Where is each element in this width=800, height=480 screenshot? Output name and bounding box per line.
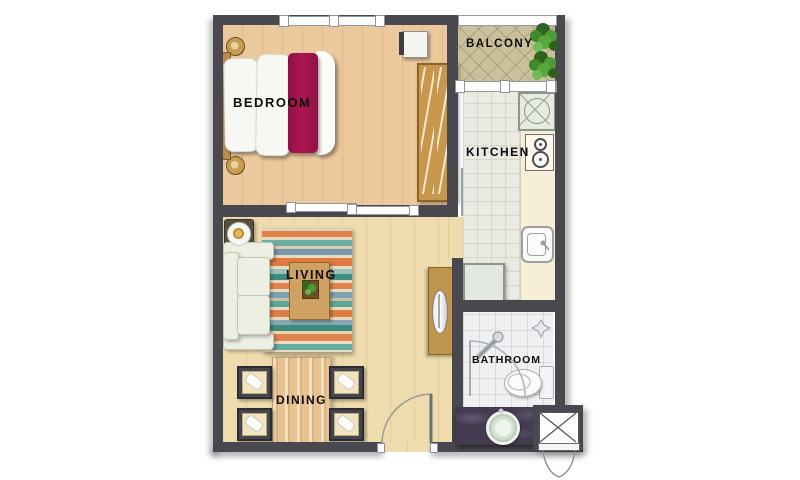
bedroom-bench: [402, 31, 428, 58]
washer-icon: [518, 92, 556, 131]
fridge: [463, 263, 505, 304]
window-mullion: [329, 15, 339, 27]
ac-door-arc: [543, 451, 559, 477]
wall-left: [213, 15, 223, 452]
bathroom-label: BATHROOM: [472, 354, 541, 366]
window-mullion: [375, 15, 385, 27]
dining-chair: [329, 366, 364, 399]
tv-icon: [432, 290, 448, 334]
door-mullion: [286, 202, 296, 213]
window-mullion: [546, 80, 556, 93]
bed-duvet: [315, 51, 335, 155]
table-plant-pot: [302, 280, 319, 299]
sliding-door-panel-b: [351, 206, 418, 215]
dining-chair: [329, 408, 364, 441]
wall-bedroom-kitchen: [447, 15, 458, 217]
balcony-railing: [458, 15, 557, 26]
window-mullion: [279, 15, 289, 27]
bench-back: [399, 32, 404, 55]
hallway-floor: [448, 217, 463, 258]
window-mullion: [455, 80, 465, 93]
bedroom-label: BEDROOM: [233, 95, 311, 110]
living-label: LIVING: [286, 268, 337, 282]
decor-plate-center: [233, 228, 244, 239]
wall-right: [555, 15, 565, 415]
washbasin-icon: [486, 411, 520, 445]
dining-label: DINING: [273, 393, 330, 407]
wall-kitchen-bathroom: [452, 300, 555, 312]
toilet-icon: [504, 369, 542, 397]
entry-door-jamb: [430, 443, 438, 453]
door-mullion: [347, 204, 357, 215]
kitchen-door-leaf: [461, 168, 463, 216]
wardrobe-hangers-icon: [421, 67, 434, 194]
balcony-floor: [458, 23, 555, 82]
ac-ledge: [539, 412, 579, 445]
ac-ledge-threshold: [538, 443, 580, 451]
wall-bottom-left: [213, 442, 383, 452]
dining-chair: [237, 366, 272, 399]
kitchen-label: KITCHEN: [466, 145, 530, 159]
sofa-cushion-1: [237, 257, 270, 297]
window-mullion: [500, 80, 510, 93]
entry-door-jamb: [377, 443, 385, 453]
door-mullion: [409, 205, 419, 216]
balcony-label: BALCONY: [466, 38, 533, 50]
kitchen-sink-icon: [521, 226, 554, 263]
sofa-cushion-2: [237, 295, 270, 335]
dining-chair: [237, 408, 272, 441]
floor-plan-canvas: BEDROOM BALCONY KITCHEN LIVING DINING BA…: [0, 0, 800, 480]
ac-door-arc: [559, 451, 575, 477]
entry-door-gap-floor: [383, 442, 431, 452]
